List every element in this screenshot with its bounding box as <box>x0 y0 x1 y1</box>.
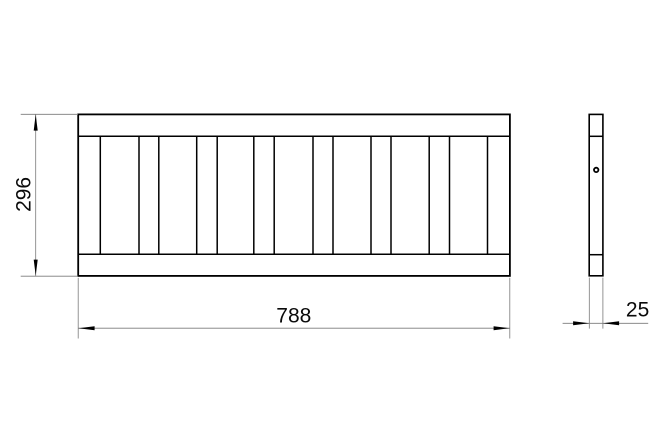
svg-text:788: 788 <box>276 304 311 327</box>
svg-text:25: 25 <box>626 299 649 322</box>
svg-text:296: 296 <box>13 177 36 212</box>
